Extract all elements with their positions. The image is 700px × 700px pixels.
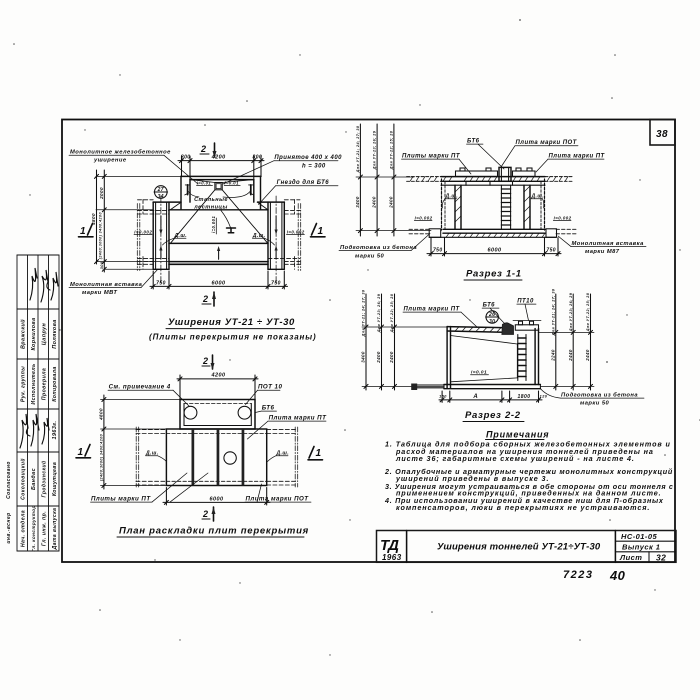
svg-text:i=0.01: i=0.01 — [197, 181, 212, 186]
svg-text:Уширения УТ-21 ÷ УТ-30: Уширения УТ-21 ÷ УТ-30 — [168, 317, 295, 328]
svg-text:Плита марки ПОТ: Плита марки ПОТ — [246, 496, 310, 503]
svg-text:Бандас: Бандас — [31, 468, 37, 490]
svg-text:2440: 2440 — [568, 349, 573, 362]
svg-text:Для УТ-22; 25; 28: Для УТ-22; 25; 28 — [390, 293, 394, 333]
svg-text:См. примечание 4: См. примечание 4 — [109, 384, 171, 391]
svg-text:уширение: уширение — [93, 158, 127, 164]
svg-text:3400: 3400 — [361, 351, 366, 363]
svg-text:Цапрун: Цапрун — [42, 322, 48, 345]
svg-text:2: 2 — [200, 144, 206, 154]
svg-text:Проверила: Проверила — [42, 368, 48, 400]
svg-text:Разрез 1-1: Разрез 1-1 — [466, 269, 522, 280]
svg-text:Плита марки ПТ: Плита марки ПТ — [404, 307, 461, 313]
svg-text:1: 1 — [78, 447, 84, 458]
svg-text:Монолитная вставка: Монолитная вставка — [70, 282, 143, 288]
svg-text:300: 300 — [99, 261, 104, 269]
svg-text:Монолитное железобетонное: Монолитное железобетонное — [70, 149, 171, 156]
svg-text:Для УТ-22; 25; 28: Для УТ-22; 25; 28 — [586, 292, 590, 332]
svg-text:Монолитная вставка: Монолитная вставка — [572, 241, 645, 247]
svg-text:1963г.: 1963г. — [52, 420, 58, 439]
svg-text:h = 300: h = 300 — [302, 164, 326, 170]
svg-text:27: 27 — [157, 187, 164, 193]
svg-text:Плиты марки ПТ: Плиты марки ПТ — [402, 154, 461, 160]
svg-text:2400: 2400 — [372, 196, 377, 209]
svg-text:Для УТ-23; 26; 29: Для УТ-23; 26; 29 — [377, 293, 381, 333]
svg-text:2: 2 — [202, 509, 208, 519]
svg-text:Для УТ-23; 26; 29: Для УТ-23; 26; 29 — [373, 130, 377, 170]
svg-text:800: 800 — [253, 155, 263, 161]
svg-text:1: 1 — [316, 448, 322, 459]
svg-text:i=0.002: i=0.002 — [554, 215, 572, 220]
svg-text:БТ6: БТ6 — [483, 303, 496, 309]
svg-text:Для УТ-22; 25; 28: Для УТ-22; 25; 28 — [390, 130, 394, 170]
svg-text:120: 120 — [540, 395, 548, 399]
svg-text:Плита марки ПТ: Плита марки ПТ — [549, 154, 606, 160]
svg-text:А: А — [472, 394, 478, 400]
svg-text:Примечания: Примечания — [486, 430, 549, 440]
svg-text:750: 750 — [271, 280, 281, 286]
svg-text:750: 750 — [546, 248, 556, 254]
svg-text:ПТ10: ПТ10 — [517, 299, 534, 305]
svg-text:1800: 1800 — [518, 394, 531, 400]
svg-text:Гл. инж. пр.: Гл. инж. пр. — [42, 511, 48, 546]
svg-text:2440: 2440 — [585, 349, 590, 362]
svg-text:инв.-вснер: инв.-вснер — [6, 512, 12, 543]
svg-text:i=0.002: i=0.002 — [415, 215, 433, 220]
svg-text:Кошутцева: Кошутцева — [52, 462, 58, 496]
svg-text:ПОТ 10: ПОТ 10 — [258, 384, 282, 391]
svg-text:Для УТ-21; 24; 27; 30: Для УТ-21; 24; 27; 30 — [356, 125, 360, 173]
svg-text:2400: 2400 — [389, 351, 394, 364]
svg-text:Рук. группы: Рук. группы — [21, 366, 27, 402]
svg-text:Корнилова: Корнилова — [31, 317, 37, 350]
svg-text:2000: 2000 — [99, 187, 104, 200]
svg-text:2400: 2400 — [389, 196, 394, 209]
svg-text:4800: 4800 — [99, 408, 104, 421]
svg-text:Лист: Лист — [619, 553, 642, 562]
svg-text:3400: 3400 — [355, 196, 360, 208]
svg-text:40: 40 — [609, 568, 626, 583]
svg-text:i=0.002: i=0.002 — [134, 230, 152, 235]
svg-text:(Плиты перекрытия не показа: (Плиты перекрытия не показаны) — [149, 333, 317, 342]
svg-text:Копировала: Копировала — [52, 366, 58, 401]
svg-text:ТД: ТД — [380, 537, 399, 554]
svg-text:(2400;3000) 3400;4200: (2400;3000) 3400;4200 — [99, 212, 103, 259]
svg-text:Гнездо для БТ6: Гнездо для БТ6 — [277, 180, 330, 186]
svg-text:НС-01-05: НС-01-05 — [621, 532, 657, 541]
svg-text:Гл. конструктор: Гл. конструктор — [31, 505, 36, 552]
svg-text:марки МВТ: марки МВТ — [82, 290, 117, 296]
svg-text:Стальные: Стальные — [194, 197, 228, 203]
svg-text:Соколовицкий: Соколовицкий — [20, 458, 27, 500]
svg-text:7223: 7223 — [563, 569, 593, 581]
svg-text:6000: 6000 — [487, 248, 501, 254]
svg-text:1: 1 — [80, 226, 86, 237]
svg-text:750: 750 — [433, 248, 443, 254]
svg-text:Плиты марки ПТ: Плиты марки ПТ — [91, 496, 151, 503]
svg-text:Согласовано: Согласовано — [6, 461, 12, 499]
svg-text:БТ6: БТ6 — [262, 405, 275, 412]
svg-text:Гродзинский: Гродзинский — [41, 460, 48, 497]
svg-text:Вражский: Вражский — [20, 319, 27, 349]
svg-text:Уширения тоннелей УТ-21÷УТ-30: Уширения тоннелей УТ-21÷УТ-30 — [437, 542, 601, 553]
svg-text:4800: 4800 — [91, 213, 96, 226]
svg-text:компенсаторов, люки в перек: компенсаторов, люки в перекрытиях не уст… — [396, 503, 650, 512]
svg-text:i=0.01: i=0.01 — [224, 181, 239, 186]
svg-text:Разрез 2-2: Разрез 2-2 — [465, 410, 521, 421]
svg-text:Подготовка из бетона: Подготовка из бетона — [340, 244, 417, 251]
svg-text:Подготовка из бетона: Подготовка из бетона — [561, 392, 638, 399]
svg-text:БТ6: БТ6 — [467, 139, 480, 145]
svg-text:4200: 4200 — [210, 373, 225, 379]
svg-text:1963: 1963 — [382, 553, 402, 562]
svg-text:800: 800 — [181, 155, 191, 161]
svg-text:марки 50: марки 50 — [580, 401, 610, 407]
svg-text:Для УТ-23; 26; 29: Для УТ-23; 26; 29 — [569, 292, 573, 332]
svg-text:4200: 4200 — [211, 155, 226, 161]
svg-text:марки М87: марки М87 — [585, 249, 620, 255]
svg-text:Дата выпуска: Дата выпуска — [52, 508, 58, 551]
svg-text:6000: 6000 — [209, 497, 223, 503]
svg-text:Плита марки ПОТ: Плита марки ПОТ — [516, 140, 578, 146]
svg-text:2: 2 — [202, 356, 208, 366]
svg-text:30: 30 — [489, 319, 495, 325]
svg-text:1: 1 — [318, 226, 324, 237]
svg-text:марки 50: марки 50 — [355, 254, 385, 260]
svg-text:Принятое 400 х 400: Принятое 400 х 400 — [274, 155, 342, 161]
svg-text:Выпуск 1: Выпуск 1 — [622, 543, 660, 552]
svg-text:38: 38 — [656, 129, 668, 140]
svg-text:i=0.002: i=0.002 — [287, 230, 305, 235]
svg-text:Полякова: Полякова — [52, 319, 58, 349]
svg-text:32: 32 — [656, 553, 666, 563]
svg-text:листе 36; габаритные схемы: листе 36; габаритные схемы уширений - на… — [395, 454, 635, 463]
svg-text:2: 2 — [202, 294, 208, 304]
svg-text:34: 34 — [158, 194, 164, 200]
svg-text:Для УТ-21; 24; 27; 30: Для УТ-21; 24; 27; 30 — [362, 289, 366, 337]
svg-text:i=0.001: i=0.001 — [211, 216, 216, 233]
svg-text:Плита марки ПТ: Плита марки ПТ — [269, 415, 327, 422]
svg-text:750: 750 — [156, 280, 166, 286]
svg-text:2240: 2240 — [551, 349, 556, 362]
svg-text:(2400;3000) 3400;4200: (2400;3000) 3400;4200 — [100, 434, 104, 481]
svg-text:Нач. отдела: Нач. отдела — [21, 510, 27, 547]
svg-text:150: 150 — [439, 395, 447, 399]
svg-text:План раскладки плит перекры: План раскладки плит перекрытия — [119, 526, 309, 537]
svg-text:Для УТ-21; 24; 27; 30: Для УТ-21; 24; 27; 30 — [552, 288, 556, 336]
svg-text:Исполнитель: Исполнитель — [31, 363, 37, 404]
svg-text:2400: 2400 — [376, 351, 381, 364]
svg-text:6000: 6000 — [211, 280, 225, 286]
